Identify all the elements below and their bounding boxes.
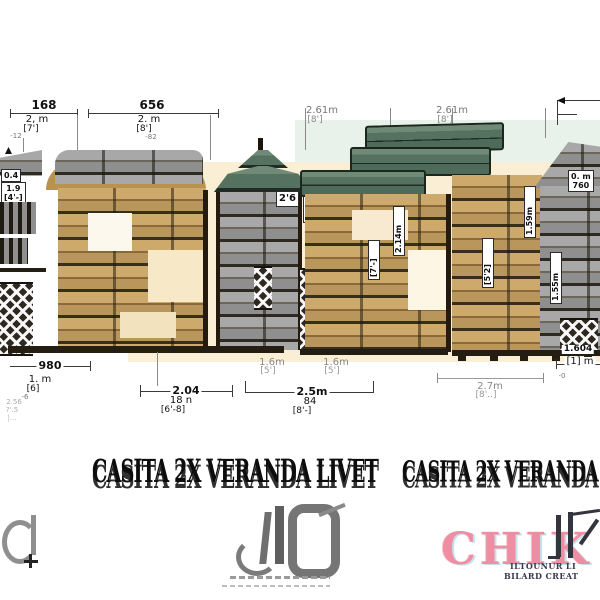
dim-feet: [7'] — [21, 125, 40, 134]
dim-tick — [557, 100, 558, 125]
pagoda-finial — [258, 138, 263, 151]
balustrade-left — [0, 282, 33, 356]
dim-frac: -12 — [10, 133, 21, 140]
dim-feet: [5'] — [322, 367, 341, 376]
dim-tick — [437, 373, 438, 383]
building-left-mini-wall-lower — [0, 238, 28, 264]
center-logo-bar2 — [275, 506, 284, 564]
dim-tick — [232, 385, 233, 397]
dim-line-27 — [437, 378, 543, 379]
height-label-7ft: [7'-] — [368, 240, 380, 280]
height-label-214-text: 2.14m — [394, 225, 403, 253]
dim-arrowhead — [557, 97, 565, 104]
wall-patch — [408, 250, 450, 310]
building-left-roof — [55, 150, 203, 184]
drop-tick — [545, 108, 546, 138]
wall-patch — [148, 250, 206, 302]
center-logo-underline-2 — [222, 585, 330, 587]
dim-frac: -6 — [22, 394, 29, 401]
height-label-159: 1.59m — [524, 186, 536, 238]
wall-patch — [120, 312, 176, 338]
height-label-159-text: 1.59m — [525, 207, 534, 235]
dim-value-168: 168 — [29, 99, 58, 111]
dim-tick — [140, 385, 141, 397]
drop-tick — [210, 115, 211, 160]
veranda-rail — [0, 268, 46, 272]
roof-slab-low — [300, 170, 426, 197]
dim-meters: [1] m — [564, 357, 595, 367]
dim-tick — [218, 109, 219, 118]
left-watermark-cross-v — [29, 554, 32, 568]
height-label-214: 2.14m — [393, 206, 405, 256]
wall-patch — [88, 213, 132, 251]
dim-tick — [90, 361, 91, 371]
label-pagoda-a: 2'6 — [276, 191, 299, 207]
dim-feet: [6'-8] — [159, 406, 187, 415]
dim-frac: -82 — [145, 134, 156, 141]
product-title-left: CASITA 2X VERANDA LIVET — [92, 452, 378, 490]
right-logo-bar1 — [556, 515, 561, 557]
base-foot — [458, 356, 466, 361]
label-right-a-text: 0. m — [571, 172, 591, 181]
dim-value-1604: 1.604 — [562, 345, 594, 354]
drop-tick — [77, 115, 78, 153]
dim-feet: [8'] — [305, 116, 324, 125]
drop-tick — [23, 138, 24, 152]
right-logo-line1: ILTOUNUR LI — [510, 562, 576, 570]
product-title-right: CASITA 2X VERANDA LIVET — [402, 456, 600, 489]
drop-tick — [157, 352, 158, 386]
dim-value-656: 656 — [137, 99, 166, 111]
height-label-52: [5'2] — [482, 238, 494, 288]
dim-tick — [373, 381, 374, 393]
height-label-52-text: [5'2] — [483, 264, 492, 285]
label-pagoda-a-text: 2'6 — [279, 193, 296, 204]
right-logo-line2: BILARD CREAT — [504, 572, 578, 580]
dim-frac: -0 — [559, 373, 566, 380]
casita-post-left — [216, 192, 220, 350]
drop-tick — [305, 108, 306, 150]
center-logo-swash — [236, 538, 278, 576]
corner-post — [203, 190, 208, 350]
label-right-height: 0. m 760 — [568, 170, 594, 192]
dim-tick — [245, 381, 246, 393]
height-label-7ft-text: [7'-] — [369, 258, 378, 277]
height-label-155-text: 1.55m — [551, 273, 560, 301]
dim-feet: [5'] — [258, 367, 277, 376]
corner-post — [446, 194, 451, 352]
building-left-mini-wall — [0, 202, 36, 234]
base-foot — [520, 356, 528, 361]
base-foot — [490, 356, 498, 361]
right-logo-foot — [548, 556, 560, 559]
label-mini-a-text: 0.4 — [4, 171, 18, 180]
dim-tick — [10, 109, 11, 118]
balustrade-casita-left — [254, 266, 272, 310]
dim-tick — [543, 373, 544, 383]
label-mini-b-text: 1.9 — [6, 184, 20, 193]
pagoda-roof-upper — [238, 150, 288, 168]
label-mini-c-text: [4'-] — [4, 193, 23, 202]
product-title-right-clip: CASITA 2X VERANDA LIVET — [402, 456, 600, 496]
dim-feet: [8'-] — [291, 407, 313, 416]
right-logo-topline — [570, 509, 600, 516]
dim-line-topright-short — [557, 114, 577, 115]
dim-faint: |... — [7, 415, 16, 422]
height-label-155: 1.55m — [550, 252, 562, 304]
dim-feet: [8'..] — [474, 391, 499, 400]
base-rail-left — [8, 346, 284, 353]
dim-faint: ?'.5 — [6, 407, 18, 414]
label-right-b-text: 760 — [573, 181, 590, 190]
drawing-sheet: 168 2, m [7'] -12 656 2. m [8'] -82 2.61… — [0, 0, 600, 600]
center-logo-underline — [230, 576, 330, 579]
right-logo-bar2 — [568, 512, 573, 558]
center-logo-ring — [288, 504, 340, 578]
label-mini-a: 0.4 — [1, 169, 21, 182]
dim-tick — [88, 109, 89, 118]
dim-value-980: 980 — [37, 360, 64, 371]
dim-tick — [556, 359, 557, 369]
base-rail-mid — [300, 349, 448, 355]
leader-arrow — [5, 147, 12, 154]
left-watermark-bar — [31, 515, 36, 555]
dim-faint: 2.56 — [6, 399, 22, 406]
